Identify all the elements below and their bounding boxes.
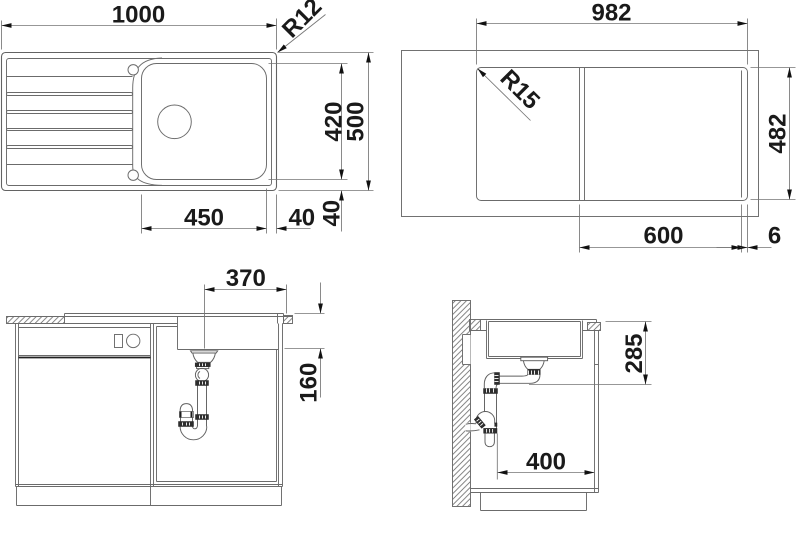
svg-text:370: 370	[226, 265, 266, 292]
svg-text:482: 482	[765, 114, 792, 154]
svg-text:1000: 1000	[112, 2, 165, 29]
svg-text:982: 982	[591, 0, 631, 26]
svg-text:285: 285	[621, 333, 648, 373]
svg-text:450: 450	[184, 204, 224, 231]
svg-text:40: 40	[288, 204, 315, 231]
svg-text:400: 400	[526, 448, 566, 475]
svg-text:160: 160	[296, 363, 323, 403]
svg-text:600: 600	[643, 222, 683, 249]
svg-text:500: 500	[343, 102, 370, 142]
svg-text:40: 40	[319, 200, 346, 227]
svg-text:6: 6	[768, 222, 781, 249]
